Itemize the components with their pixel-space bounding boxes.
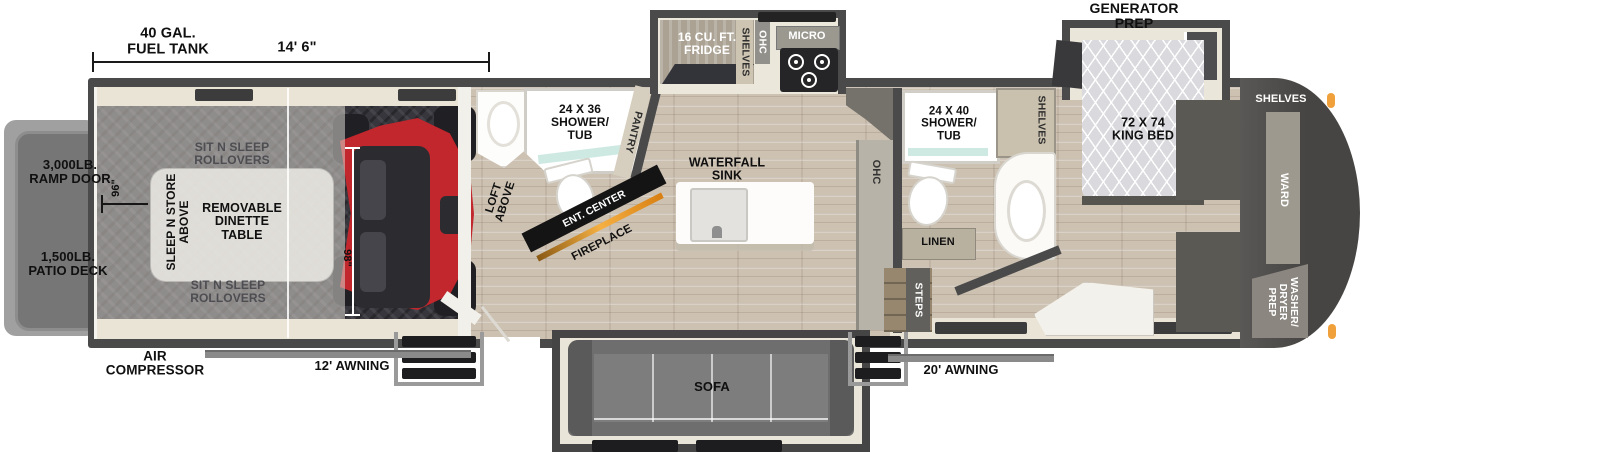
steps-label: STEPS	[912, 283, 923, 318]
burner-icon	[788, 54, 804, 70]
washer-dryer-label: WASHER/ DRYER PREP	[1265, 277, 1299, 327]
linen-label: LINEN	[921, 237, 955, 249]
sofa-slide-window	[592, 440, 678, 452]
ward-label: WARD	[1277, 173, 1289, 207]
burner-icon	[801, 72, 817, 88]
generator-prep-label: GENERATOR PREP	[1089, 1, 1178, 31]
sleep-store-label: SLEEP N STORE ABOVE	[165, 174, 191, 271]
ramp-door-label: 3,000LB. RAMP DOOR	[29, 158, 111, 186]
waterfall-sink-label: WATERFALL SINK	[689, 157, 765, 184]
marker-light	[1327, 93, 1335, 108]
shower-24x36-label: 24 X 36 SHOWER/ TUB	[551, 103, 609, 141]
faucet-icon	[712, 226, 722, 238]
awning-bar	[888, 354, 1054, 362]
king-bed-label: 72 X 74 KING BED	[1112, 117, 1174, 144]
bath1-sink-basin	[487, 101, 520, 147]
bedroom-cabinet	[1176, 100, 1242, 200]
rollovers-top-label: SIT N SLEEP ROLLOVERS	[194, 141, 270, 167]
floorplan-diagram: SIT N SLEEP ROLLOVERS SLEEP N STORE ABOV…	[0, 0, 1600, 452]
shower-24x40-label: 24 X 40 SHOWER/ TUB	[921, 106, 977, 143]
bedroom-cabinet	[1176, 232, 1242, 332]
micro-label: MICRO	[788, 31, 825, 43]
dim-96-label: 96"	[111, 179, 123, 197]
entry-steps	[394, 332, 484, 386]
marker-light	[1328, 324, 1336, 339]
length-label: 14' 6"	[277, 40, 316, 56]
awning-bar	[205, 350, 471, 358]
roof-vent	[935, 322, 1027, 334]
dim-tick	[488, 52, 490, 72]
dim-98-label: 98"	[340, 249, 352, 267]
sofa-arm	[568, 340, 592, 436]
fuel-tank-label: 40 GAL. FUEL TANK	[127, 27, 209, 58]
sofa-slide-window	[696, 440, 782, 452]
dim-96-tick	[101, 195, 103, 213]
roof-vent	[398, 89, 456, 101]
bath2-shower-floor	[908, 148, 988, 156]
bath2-toilet	[897, 160, 959, 232]
atv-seat	[360, 232, 386, 292]
dim-line	[93, 61, 490, 63]
burner-icon	[814, 54, 830, 70]
bath2-sink-basin	[1007, 180, 1046, 242]
sofa-seam	[770, 354, 772, 422]
measure-line	[287, 88, 289, 338]
kitchen-shelves-label: SHELVES	[739, 28, 750, 77]
dim-98-tick	[345, 147, 360, 149]
fridge-label: 16 CU. FT. FRIDGE	[678, 31, 736, 57]
measure-line	[94, 87, 97, 339]
sofa-seam	[652, 354, 654, 422]
rollovers-bottom-label: SIT N SLEEP ROLLOVERS	[190, 279, 266, 305]
range-hood	[758, 12, 836, 22]
kitchen-ohc-label: OHC	[756, 30, 767, 54]
dinette-label: REMOVABLE DINETTE TABLE	[202, 202, 282, 242]
patio-deck-label: 1,500LB. PATIO DECK	[28, 250, 107, 278]
awning-20-label: 20' AWNING	[923, 363, 998, 377]
air-compressor-label: AIR COMPRESSOR	[106, 350, 205, 379]
sofa-label: SOFA	[694, 380, 730, 394]
dim-96-line	[102, 203, 148, 205]
atv-seat	[360, 160, 386, 220]
roof-vent	[195, 89, 253, 101]
entry-door-gap	[482, 337, 540, 348]
hall-ohc-label: OHC	[869, 160, 881, 185]
awning-12-label: 12' AWNING	[314, 359, 389, 373]
dim-tick	[92, 52, 94, 72]
sofa-front-line	[594, 418, 828, 420]
cooktop	[780, 48, 838, 92]
front-shelves-label: SHELVES	[1255, 94, 1306, 106]
dim-98-line	[352, 148, 354, 316]
bath2-shelves-label: SHELVES	[1035, 96, 1046, 145]
dim-98-tick	[345, 314, 360, 316]
